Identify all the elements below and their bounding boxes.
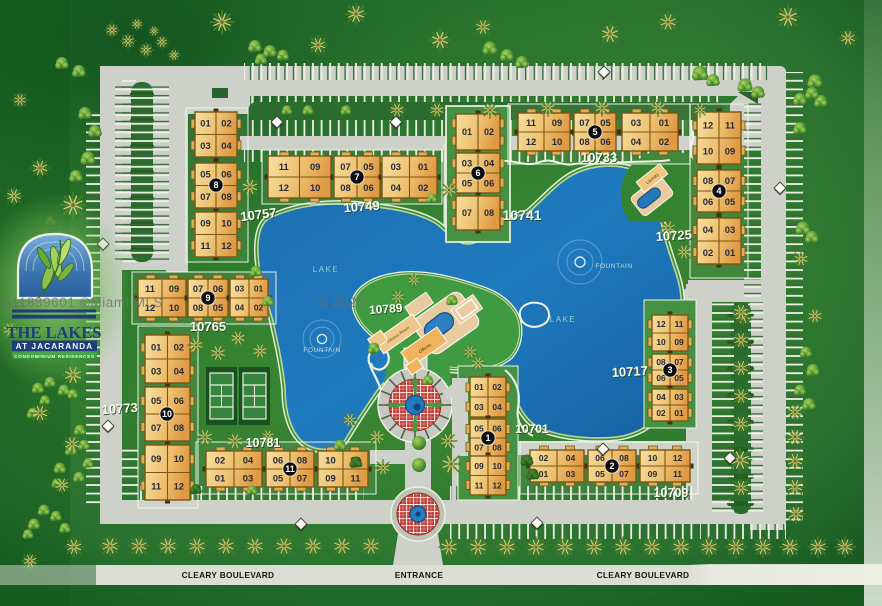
svg-text:11: 11	[526, 117, 536, 128]
svg-text:10: 10	[221, 218, 231, 229]
svg-text:11: 11	[351, 472, 361, 483]
svg-text:02: 02	[215, 454, 225, 465]
svg-text:08: 08	[340, 182, 350, 193]
svg-text:05: 05	[595, 469, 605, 479]
svg-text:11: 11	[151, 481, 161, 492]
svg-text:04: 04	[484, 157, 495, 168]
svg-text:08: 08	[484, 208, 494, 218]
svg-text:LAKE: LAKE	[550, 315, 576, 324]
svg-text:03: 03	[725, 224, 735, 235]
svg-text:08: 08	[193, 302, 203, 313]
svg-text:10765: 10765	[190, 319, 226, 334]
svg-text:8: 8	[213, 180, 218, 190]
svg-text:08: 08	[221, 191, 231, 202]
svg-text:09: 09	[474, 461, 484, 471]
svg-text:10725: 10725	[655, 227, 692, 244]
svg-text:05: 05	[725, 196, 735, 207]
svg-text:02: 02	[656, 408, 666, 418]
svg-text:10741: 10741	[503, 207, 542, 223]
svg-text:04: 04	[703, 224, 714, 235]
svg-text:04: 04	[174, 365, 185, 376]
svg-text:04: 04	[391, 182, 402, 193]
svg-text:A11889601 ©Miami MLS: A11889601 ©Miami MLS	[2, 295, 163, 310]
svg-text:CLEARY BOULEVARD: CLEARY BOULEVARD	[597, 570, 690, 580]
svg-text:04: 04	[235, 303, 245, 313]
svg-text:06: 06	[600, 136, 610, 147]
svg-text:04: 04	[221, 140, 232, 151]
svg-text:02: 02	[174, 341, 184, 352]
svg-text:11: 11	[673, 469, 682, 479]
svg-text:01: 01	[254, 284, 264, 294]
svg-text:07: 07	[474, 443, 484, 453]
svg-text:07: 07	[340, 161, 350, 172]
svg-text:01: 01	[659, 117, 669, 128]
svg-text:07: 07	[200, 191, 210, 202]
svg-text:03: 03	[631, 117, 641, 128]
svg-text:10749: 10749	[343, 198, 380, 215]
svg-text:12: 12	[492, 480, 502, 490]
svg-text:04: 04	[656, 392, 666, 402]
svg-text:08: 08	[579, 136, 589, 147]
svg-text:07: 07	[619, 469, 629, 479]
svg-text:10: 10	[169, 302, 179, 313]
svg-text:1: 1	[485, 433, 490, 443]
svg-text:12: 12	[673, 453, 683, 463]
svg-text:05: 05	[151, 395, 161, 406]
svg-text:10717: 10717	[611, 363, 648, 380]
svg-text:© 2025: © 2025	[318, 295, 365, 310]
svg-text:10: 10	[325, 454, 335, 465]
svg-text:THE LAKES: THE LAKES	[7, 323, 102, 342]
svg-text:10: 10	[174, 453, 184, 464]
svg-text:02: 02	[221, 118, 231, 129]
svg-text:12: 12	[526, 136, 536, 147]
svg-text:09: 09	[169, 283, 179, 294]
svg-text:10: 10	[162, 409, 172, 419]
svg-text:03: 03	[235, 284, 245, 294]
svg-text:10: 10	[492, 461, 502, 471]
svg-text:01: 01	[200, 118, 210, 129]
svg-text:CLEARY BOULEVARD: CLEARY BOULEVARD	[182, 570, 275, 580]
svg-text:11: 11	[285, 464, 295, 474]
svg-text:CONDOMINIUM RESIDENCES: CONDOMINIUM RESIDENCES	[14, 354, 94, 359]
svg-text:07: 07	[579, 117, 589, 128]
svg-text:08: 08	[492, 443, 502, 453]
svg-text:03: 03	[243, 472, 253, 483]
svg-text:09: 09	[310, 161, 320, 172]
svg-text:03: 03	[566, 469, 576, 479]
svg-text:05: 05	[213, 302, 223, 313]
svg-text:05: 05	[474, 424, 484, 434]
svg-text:09: 09	[200, 218, 210, 229]
svg-text:07: 07	[297, 472, 307, 483]
svg-text:07: 07	[725, 175, 735, 186]
svg-text:9: 9	[205, 293, 210, 303]
svg-text:09: 09	[725, 145, 735, 156]
svg-text:05: 05	[273, 472, 283, 483]
svg-text:03: 03	[474, 402, 484, 412]
svg-text:05: 05	[363, 161, 373, 172]
svg-text:01: 01	[474, 382, 484, 392]
svg-text:2: 2	[609, 461, 614, 471]
svg-text:03: 03	[462, 157, 472, 168]
svg-text:09: 09	[151, 453, 161, 464]
svg-text:06: 06	[492, 424, 502, 434]
svg-text:7: 7	[354, 172, 359, 182]
svg-text:09: 09	[648, 469, 658, 479]
svg-text:01: 01	[539, 469, 549, 479]
svg-text:02: 02	[492, 382, 502, 392]
svg-text:06: 06	[703, 196, 713, 207]
svg-text:01: 01	[215, 472, 225, 483]
svg-text:08: 08	[174, 422, 184, 433]
svg-text:01: 01	[674, 408, 684, 418]
svg-text:09: 09	[674, 337, 684, 347]
svg-text:12: 12	[174, 481, 184, 492]
svg-text:07: 07	[151, 422, 161, 433]
svg-text:01: 01	[462, 127, 472, 137]
svg-text:03: 03	[391, 161, 401, 172]
svg-text:10: 10	[648, 453, 658, 463]
svg-text:08: 08	[703, 175, 713, 186]
svg-text:10: 10	[703, 145, 713, 156]
svg-text:06: 06	[363, 182, 373, 193]
svg-text:06: 06	[174, 395, 184, 406]
svg-text:11: 11	[675, 319, 684, 329]
svg-text:03: 03	[674, 392, 684, 402]
svg-text:ENTRANCE: ENTRANCE	[395, 570, 444, 580]
svg-text:FOUNTAIN: FOUNTAIN	[595, 263, 632, 270]
svg-text:08: 08	[619, 453, 629, 463]
svg-text:01: 01	[418, 161, 428, 172]
svg-text:10709: 10709	[654, 486, 689, 500]
svg-text:01: 01	[151, 341, 161, 352]
svg-text:11: 11	[145, 283, 155, 294]
svg-text:10: 10	[552, 136, 562, 147]
svg-text:09: 09	[552, 117, 562, 128]
svg-text:08: 08	[297, 454, 307, 465]
svg-text:11: 11	[475, 480, 484, 490]
svg-text:04: 04	[492, 402, 502, 412]
svg-text:03: 03	[151, 365, 161, 376]
svg-text:LAKE: LAKE	[313, 265, 339, 274]
svg-text:12: 12	[221, 240, 231, 251]
svg-text:10773: 10773	[101, 400, 138, 417]
svg-text:04: 04	[566, 453, 576, 463]
svg-text:FOUNTAIN: FOUNTAIN	[303, 347, 340, 354]
svg-text:5: 5	[592, 127, 597, 137]
svg-text:05: 05	[200, 169, 210, 180]
svg-text:10701: 10701	[515, 422, 549, 436]
svg-text:AT JACARANDA: AT JACARANDA	[16, 342, 94, 351]
svg-text:02: 02	[659, 136, 669, 147]
svg-text:11: 11	[279, 161, 289, 172]
svg-text:12: 12	[279, 182, 289, 193]
svg-text:02: 02	[703, 247, 713, 258]
svg-text:10: 10	[310, 182, 320, 193]
svg-text:02: 02	[484, 127, 494, 137]
svg-text:10: 10	[656, 337, 666, 347]
svg-text:06: 06	[221, 169, 231, 180]
svg-text:09: 09	[325, 472, 335, 483]
svg-text:3: 3	[667, 365, 672, 375]
svg-text:05: 05	[600, 117, 610, 128]
svg-text:06: 06	[213, 283, 223, 294]
svg-text:10733: 10733	[581, 150, 617, 165]
svg-text:11: 11	[725, 119, 735, 130]
svg-text:02: 02	[418, 182, 428, 193]
svg-text:6: 6	[475, 168, 480, 178]
svg-text:10789: 10789	[369, 301, 404, 317]
svg-text:04: 04	[243, 454, 254, 465]
svg-text:06: 06	[273, 454, 283, 465]
svg-text:4: 4	[716, 186, 721, 196]
svg-text:12: 12	[703, 119, 713, 130]
svg-text:11: 11	[201, 240, 211, 251]
svg-text:10781: 10781	[246, 436, 281, 450]
svg-text:03: 03	[200, 140, 210, 151]
svg-text:04: 04	[631, 136, 642, 147]
svg-text:12: 12	[656, 319, 666, 329]
svg-text:05: 05	[462, 177, 472, 188]
svg-text:02: 02	[254, 303, 264, 313]
svg-text:07: 07	[462, 208, 472, 218]
svg-text:01: 01	[725, 247, 735, 258]
svg-text:07: 07	[193, 283, 203, 294]
svg-text:02: 02	[539, 453, 549, 463]
svg-text:06: 06	[484, 177, 494, 188]
